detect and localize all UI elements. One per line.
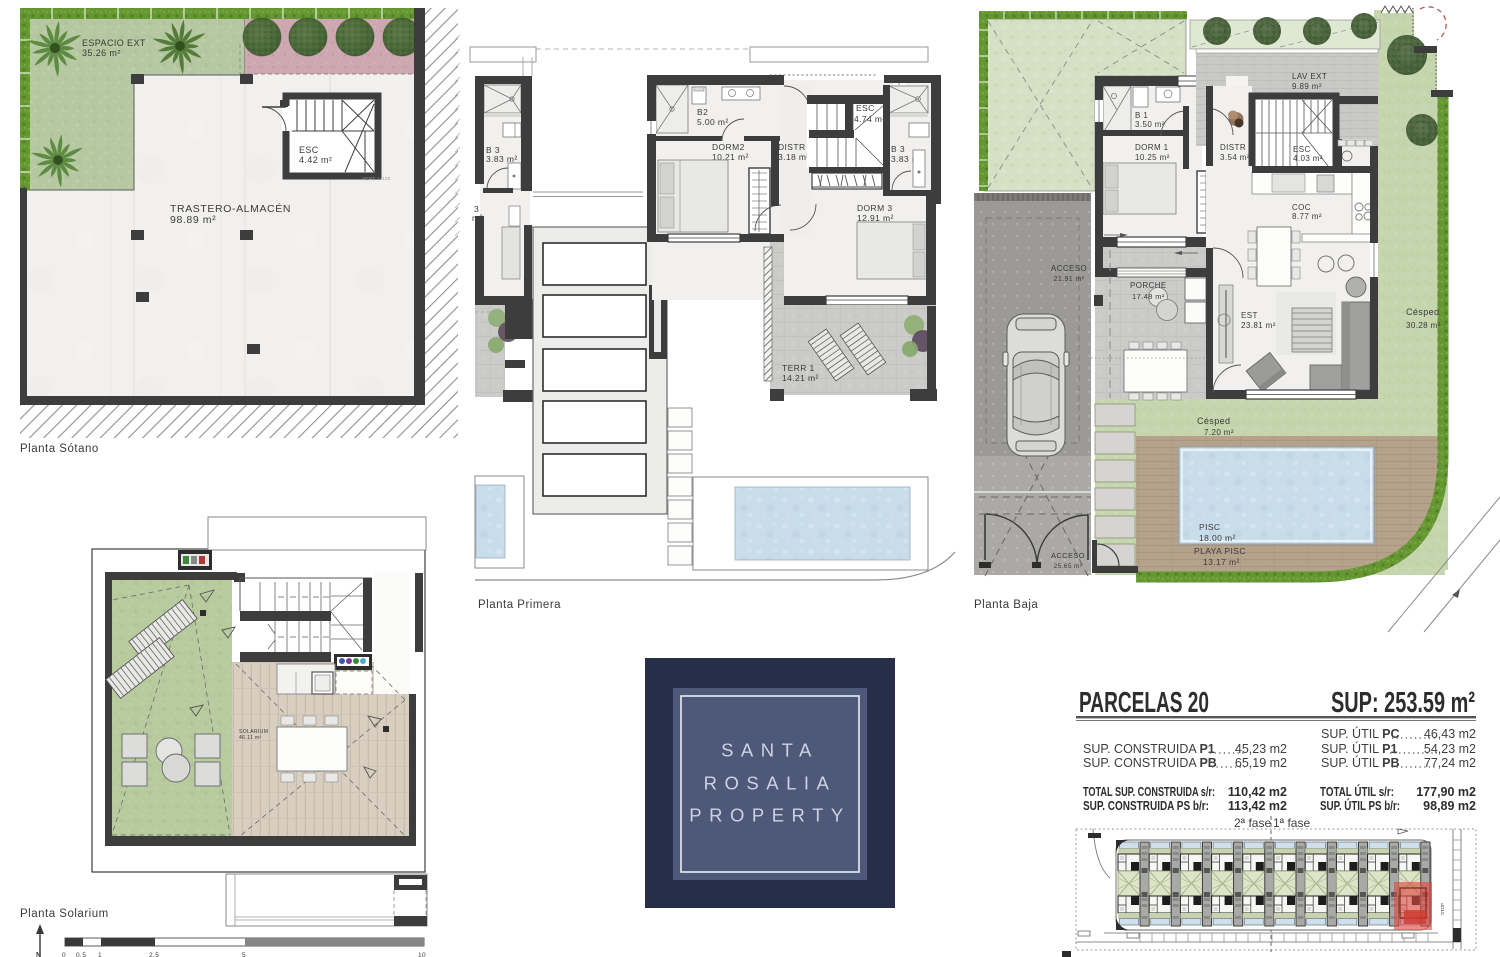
svg-text:Planta Primera: Planta Primera xyxy=(478,599,561,611)
svg-text:Césped: Césped xyxy=(1406,307,1439,317)
svg-text:4.42 m²: 4.42 m² xyxy=(299,155,332,165)
svg-text:12.91 m²: 12.91 m² xyxy=(857,213,894,223)
svg-text:SUP. CONSTRUIDA P1: SUP. CONSTRUIDA P1 xyxy=(1083,742,1215,756)
svg-text:DORM2: DORM2 xyxy=(712,142,745,152)
svg-text:30.28 m²: 30.28 m² xyxy=(1406,321,1441,330)
svg-text:98,89 m2: 98,89 m2 xyxy=(1423,799,1476,813)
svg-text:54,23 m2: 54,23 m2 xyxy=(1424,742,1476,756)
svg-text:10: 10 xyxy=(418,952,426,957)
svg-text:STOP: STOP xyxy=(1440,903,1445,915)
svg-text:DORM 1: DORM 1 xyxy=(1135,143,1169,152)
svg-text:4.03 m²: 4.03 m² xyxy=(1293,154,1323,163)
svg-text:113,42 m2: 113,42 m2 xyxy=(1228,799,1287,813)
svg-text:14.21 m²: 14.21 m² xyxy=(782,373,819,383)
svg-text:Planta Sótano: Planta Sótano xyxy=(20,443,99,455)
svg-text:Césped: Césped xyxy=(1197,416,1230,426)
svg-text:98.89 m²: 98.89 m² xyxy=(170,214,216,226)
svg-text:ACCESO: ACCESO xyxy=(1051,264,1087,273)
svg-text:SUP. CONSTRUIDA PB: SUP. CONSTRUIDA PB xyxy=(1083,756,1217,770)
svg-text:B2: B2 xyxy=(697,107,708,117)
svg-text:COC: COC xyxy=(1292,203,1311,212)
svg-text:7.20 m²: 7.20 m² xyxy=(1204,428,1234,437)
svg-text:13.17 m²: 13.17 m² xyxy=(1203,557,1240,567)
svg-text:0: 0 xyxy=(62,952,66,957)
svg-text:TOTAL ÚTIL s/r:: TOTAL ÚTIL s/r: xyxy=(1320,784,1394,799)
svg-text:23.81 m²: 23.81 m² xyxy=(1241,321,1276,330)
svg-text:3.50 m²: 3.50 m² xyxy=(1135,120,1165,129)
svg-text:TOTAL SUP. CONSTRUIDA s/r:: TOTAL SUP. CONSTRUIDA s/r: xyxy=(1083,785,1215,799)
svg-text:2ª fase: 2ª fase xyxy=(1234,816,1271,830)
svg-text:ESC: ESC xyxy=(1293,145,1311,154)
svg-text:PLAYA PISC: PLAYA PISC xyxy=(1194,546,1246,556)
svg-text:DORM 3: DORM 3 xyxy=(857,203,892,213)
svg-text:ESC: ESC xyxy=(856,103,875,113)
svg-text:Planta Baja: Planta Baja xyxy=(974,599,1038,611)
svg-text:3.18 m²: 3.18 m² xyxy=(778,152,810,162)
svg-text:DISTR: DISTR xyxy=(778,142,806,152)
svg-text:5: 5 xyxy=(242,952,246,957)
svg-text:DISTR: DISTR xyxy=(1220,143,1246,152)
svg-text:SUP. CONSTRUIDA PS b/r:: SUP. CONSTRUIDA PS b/r: xyxy=(1083,799,1209,813)
svg-text:46.11 m²: 46.11 m² xyxy=(239,735,262,741)
svg-text:0.5: 0.5 xyxy=(76,952,86,957)
svg-text:17.48 m²: 17.48 m² xyxy=(1132,292,1165,301)
svg-text:PROPERTY: PROPERTY xyxy=(689,805,850,826)
svg-text:B 3: B 3 xyxy=(891,144,905,154)
svg-text:SUP: 253.59 m²: SUP: 253.59 m² xyxy=(1331,687,1475,719)
svg-text:ESC: ESC xyxy=(299,145,319,155)
svg-text:5.00 m²: 5.00 m² xyxy=(697,117,729,127)
svg-text:9.89 m²: 9.89 m² xyxy=(1292,82,1322,91)
svg-text:2.5: 2.5 xyxy=(149,952,159,957)
svg-text:77,24 m2: 77,24 m2 xyxy=(1424,756,1476,770)
svg-text:10.25 m²: 10.25 m² xyxy=(1135,153,1170,162)
svg-text:177,90 m2: 177,90 m2 xyxy=(1416,785,1476,799)
svg-text:1ª fase: 1ª fase xyxy=(1273,816,1310,830)
svg-text:8.77 m²: 8.77 m² xyxy=(1292,212,1322,221)
svg-text:SUP. ÚTIL PC: SUP. ÚTIL PC xyxy=(1321,726,1400,741)
svg-text:4.74 m²: 4.74 m² xyxy=(854,114,886,124)
svg-text:SUP. ÚTIL PS b/r:: SUP. ÚTIL PS b/r: xyxy=(1320,798,1400,813)
svg-text:35.26 m²: 35.26 m² xyxy=(82,48,121,58)
svg-text:46,43 m2: 46,43 m2 xyxy=(1424,727,1476,741)
svg-text:SUP. ÚTIL PB: SUP. ÚTIL PB xyxy=(1321,755,1400,770)
svg-text:3.54 m²: 3.54 m² xyxy=(1220,153,1250,162)
svg-text:1: 1 xyxy=(98,952,102,957)
svg-text:SUP. ÚTIL P1: SUP. ÚTIL P1 xyxy=(1321,741,1397,756)
svg-text:ACCESO: ACCESO xyxy=(1051,551,1085,560)
svg-text:65,19 m2: 65,19 m2 xyxy=(1235,756,1287,770)
svg-text:Planta Solarium: Planta Solarium xyxy=(20,908,109,920)
svg-text:21.91 m²: 21.91 m² xyxy=(1054,276,1085,283)
svg-text:110,42 m2: 110,42 m2 xyxy=(1228,785,1287,799)
svg-text:PORCHE: PORCHE xyxy=(1130,281,1167,290)
svg-text:TERR 1: TERR 1 xyxy=(782,363,815,373)
svg-text:LAV EXT: LAV EXT xyxy=(1292,72,1327,81)
svg-text:45,23 m2: 45,23 m2 xyxy=(1235,742,1287,756)
svg-text:PARCELAS 20: PARCELAS 20 xyxy=(1079,687,1209,719)
svg-text:ESPACIO EXT: ESPACIO EXT xyxy=(82,38,146,48)
svg-text:3.83 m²: 3.83 m² xyxy=(486,154,518,164)
svg-text:ROSALIA: ROSALIA xyxy=(704,773,837,794)
svg-text:EST: EST xyxy=(1241,311,1258,320)
svg-text:B 1: B 1 xyxy=(1135,111,1148,120)
svg-text:18.00 m²: 18.00 m² xyxy=(1199,533,1236,543)
svg-text:VENT 1-125: VENT 1-125 xyxy=(362,176,391,181)
svg-text:PISC: PISC xyxy=(1199,522,1220,532)
svg-text:25.65 m²: 25.65 m² xyxy=(1054,563,1083,570)
svg-text:SANTA: SANTA xyxy=(721,740,819,761)
svg-text:N: N xyxy=(36,952,41,957)
